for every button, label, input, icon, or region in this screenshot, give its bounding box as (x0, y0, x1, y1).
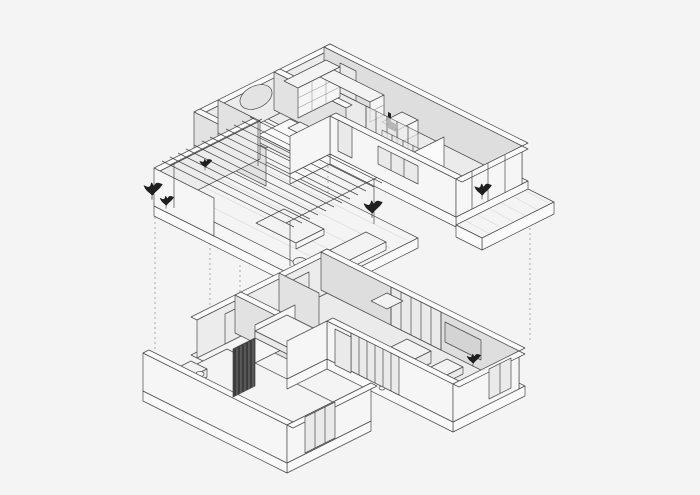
door-opening (338, 120, 352, 158)
canvas (0, 0, 700, 495)
door-opening (335, 329, 351, 373)
axonometric-drawing (0, 0, 700, 495)
